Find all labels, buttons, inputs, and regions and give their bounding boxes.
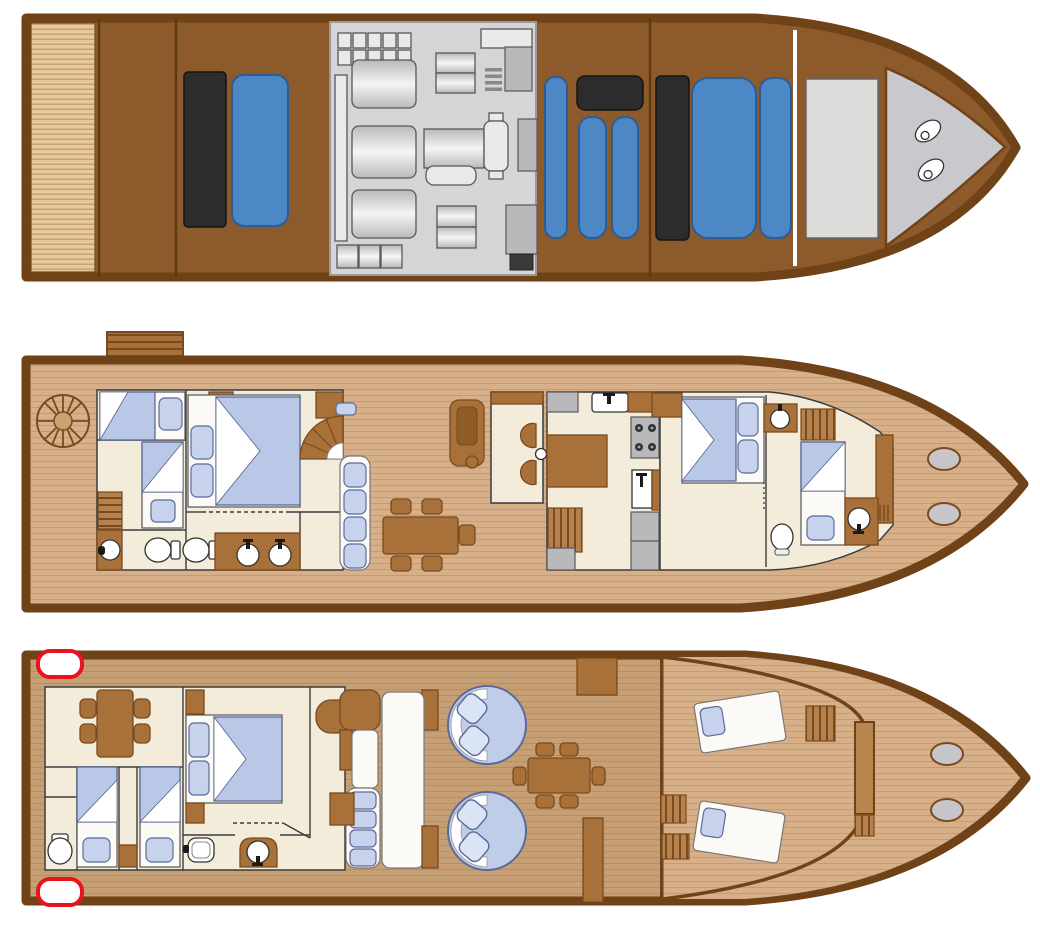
chair (513, 767, 526, 785)
double-bed (188, 395, 300, 507)
single-bed (142, 442, 183, 528)
helm-station (491, 392, 547, 503)
fore-cabins (652, 392, 893, 570)
cushion (336, 403, 356, 415)
chair (80, 724, 96, 743)
midship-tanks (545, 76, 791, 240)
yacht-deck-plans (0, 0, 1040, 926)
control-panel (518, 119, 537, 171)
stairs (801, 409, 835, 440)
chair (536, 795, 554, 808)
chair (560, 795, 578, 808)
galley-island (547, 435, 607, 487)
nightstand (119, 845, 137, 867)
switchboard (505, 47, 532, 91)
salon-block (45, 687, 356, 870)
double-bed (682, 397, 764, 483)
battery-row-lower (337, 245, 402, 268)
chair (134, 724, 150, 743)
chair (536, 743, 554, 756)
cabinet (547, 548, 575, 570)
deck-hatch-grate (806, 706, 835, 741)
chair (391, 499, 411, 514)
deck-main (26, 651, 1026, 905)
chair (422, 499, 442, 514)
chair (459, 525, 475, 545)
blue-water-tank (232, 75, 288, 226)
companionway-steps (662, 834, 689, 859)
counter (547, 392, 578, 412)
foredeck-hatch (931, 799, 963, 821)
collision-bulkhead (793, 30, 797, 266)
wheel (536, 449, 547, 460)
double-bed (186, 715, 282, 803)
aft-cabin-block (97, 390, 370, 570)
foredeck-hatch (931, 743, 963, 765)
round-lounge (448, 792, 526, 870)
swim-platform (31, 23, 95, 272)
nightstand (186, 690, 204, 714)
stringer-rail (335, 75, 347, 241)
engine-cylinder (352, 60, 416, 108)
stairs (548, 508, 582, 552)
chair (391, 556, 411, 571)
twin-pump-bottom (437, 206, 476, 248)
chair (560, 743, 578, 756)
deck-lower-accommodation (26, 332, 1024, 608)
gangway (107, 332, 183, 358)
engine-room (330, 22, 537, 275)
console-steps (855, 815, 874, 836)
lounge-chair (450, 400, 484, 468)
wall-settee (340, 456, 370, 570)
foredeck (663, 657, 1020, 899)
twin-pump-top (436, 53, 475, 93)
single-bed (100, 392, 185, 440)
capstan-wheel (37, 395, 89, 447)
counter (652, 393, 682, 417)
forward-locker (806, 79, 878, 238)
chair (134, 699, 150, 718)
single-bed (140, 767, 180, 867)
washbasin (764, 404, 797, 432)
toilet (145, 538, 180, 562)
single-bed (801, 442, 845, 545)
bulkhead-line (660, 655, 664, 901)
nightstand (186, 803, 204, 823)
engine-cylinder (352, 126, 416, 178)
deck-locker (583, 818, 603, 902)
aux-unit (506, 205, 537, 254)
galley (547, 392, 664, 570)
deck-hatch (928, 448, 960, 470)
galley-sink (592, 393, 628, 412)
toilet (845, 498, 878, 545)
black-fuel-tank (184, 72, 226, 227)
steering-console (855, 722, 874, 814)
chair (592, 767, 605, 785)
deck-plan-canvas (0, 0, 1040, 926)
deck-locker (577, 658, 617, 695)
toilet-alcove (240, 838, 277, 867)
fridge (632, 470, 652, 508)
workbench (481, 29, 532, 48)
hatch-dark (510, 254, 533, 270)
single-bed (77, 767, 117, 867)
chair (80, 699, 96, 718)
companionway-steps (661, 795, 686, 823)
stove (631, 417, 659, 458)
toilet (183, 538, 218, 562)
deck-hatch (928, 503, 960, 525)
chair (422, 556, 442, 571)
engine-cylinder (352, 190, 416, 238)
stairs (98, 492, 122, 529)
deck-tank-engine (26, 18, 1016, 277)
toilet (48, 834, 72, 864)
stern-fender (38, 879, 82, 905)
stern-fender (38, 651, 82, 677)
round-lounge (448, 686, 526, 764)
